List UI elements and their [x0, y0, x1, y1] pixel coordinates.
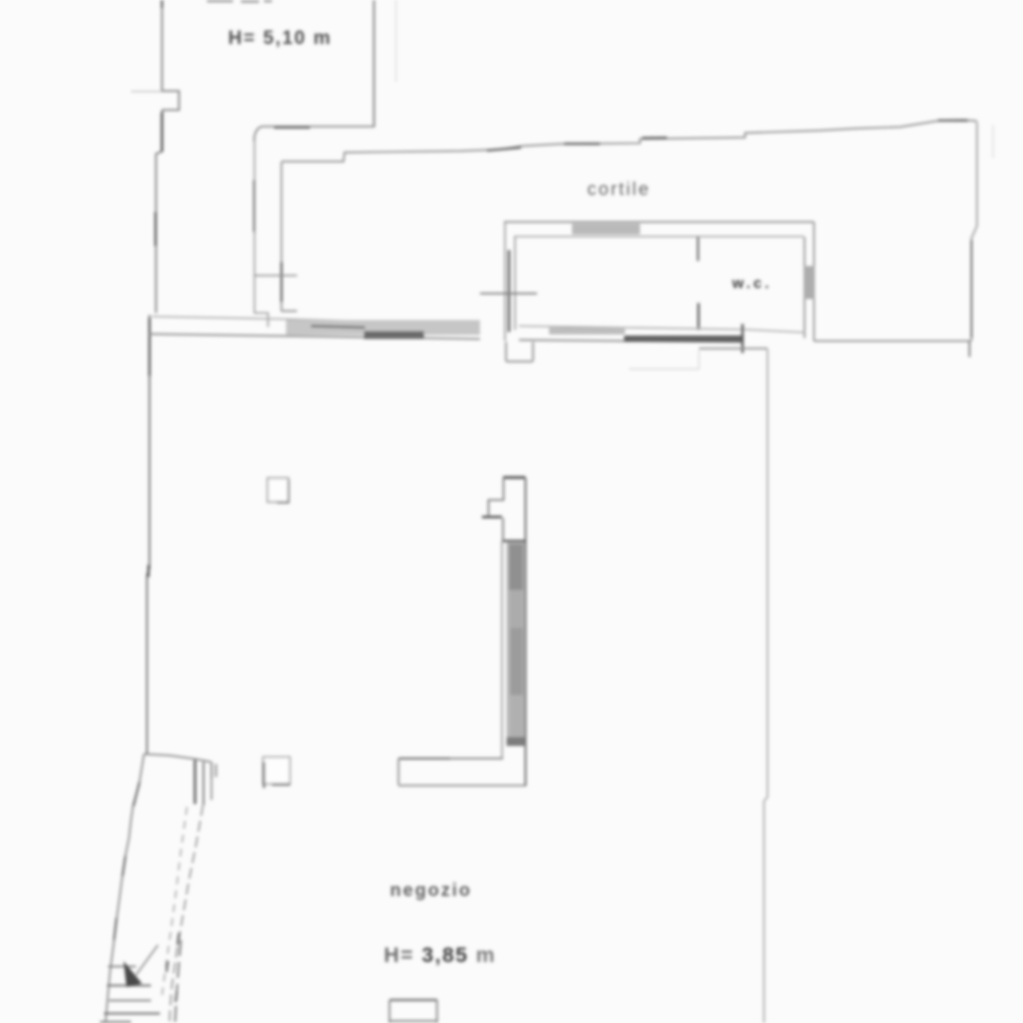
svg-text:cortile: cortile — [587, 179, 650, 199]
svg-text:H= 3,85 m: H= 3,85 m — [384, 944, 496, 967]
svg-text:H= 5,10 m: H= 5,10 m — [228, 28, 332, 49]
svg-text:w.c.: w.c. — [731, 275, 772, 292]
svg-text:negozio: negozio — [390, 880, 472, 900]
